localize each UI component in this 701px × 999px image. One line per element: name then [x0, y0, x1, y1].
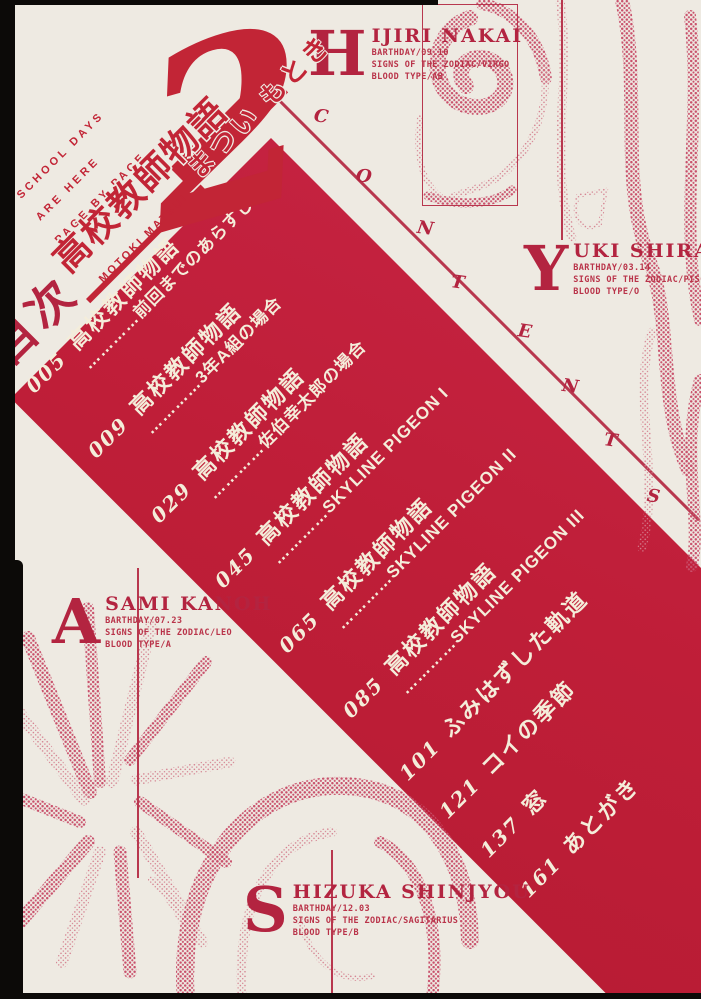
character-name: UKI SHIRAISHI	[573, 241, 701, 262]
character-birthday: BARTHDAY/03.14	[573, 262, 701, 274]
character-initial: S	[243, 882, 288, 938]
portrait-shizuka-shinjyou	[160, 740, 490, 999]
contents-letter: N	[416, 217, 435, 240]
character-block-shizuka: S HIZUKA SHINJYOU BARTHDAY/12.03 SIGNS O…	[243, 882, 531, 939]
character-block-yuki: Y UKI SHIRAISHI BARTHDAY/03.14 SIGNS OF …	[524, 241, 701, 298]
character-birthday: BARTHDAY/12.03	[293, 903, 531, 915]
character-zodiac: SIGNS OF THE ZODIAC/SAGITARIUS	[293, 915, 531, 927]
contents-letter: N	[561, 375, 580, 398]
character-blood-type: BLOOD TYPE/B	[293, 927, 531, 939]
character-birthday: BARTHDAY/09.10	[372, 47, 524, 59]
character-name: IJIRI NAKAI	[372, 26, 524, 47]
character-blood-type: BLOOD TYPE/O	[573, 286, 701, 298]
scan-edge-left-lower	[0, 560, 23, 999]
character-initial: A	[52, 594, 100, 650]
manga-contents-page: 005高校教師物語 …………前回までのあらすじ 009高校教師物語 …………3年…	[0, 0, 701, 999]
contents-letter: O	[355, 165, 373, 188]
character-block-asami: A SAMI KANOH BARTHDAY/07.23 SIGNS OF THE…	[52, 594, 272, 651]
contents-letter: E	[517, 320, 534, 343]
character-name: SAMI KANOH	[105, 594, 272, 615]
character-blood-type: BLOOD TYPE/AB	[372, 71, 524, 83]
scan-edge-top	[0, 0, 438, 5]
contents-letter: C	[313, 105, 330, 128]
character-birthday: BARTHDAY/07.23	[105, 615, 272, 627]
yuki-panel-divider	[561, 0, 563, 240]
character-zodiac: SIGNS OF THE ZODIAC/PISCES	[573, 274, 701, 286]
character-block-hijiri: H IJIRI NAKAI BARTHDAY/09.10 SIGNS OF TH…	[308, 26, 523, 83]
contents-letter: T	[450, 271, 466, 294]
character-zodiac: SIGNS OF THE ZODIAC/LEO	[105, 627, 272, 639]
character-name: HIZUKA SHINJYOU	[293, 882, 531, 903]
character-blood-type: BLOOD TYPE/A	[105, 639, 272, 651]
scan-edge-bottom	[0, 993, 701, 999]
character-zodiac: SIGNS OF THE ZODIAC/VIRGO	[372, 59, 524, 71]
character-initial: Y	[524, 241, 568, 297]
